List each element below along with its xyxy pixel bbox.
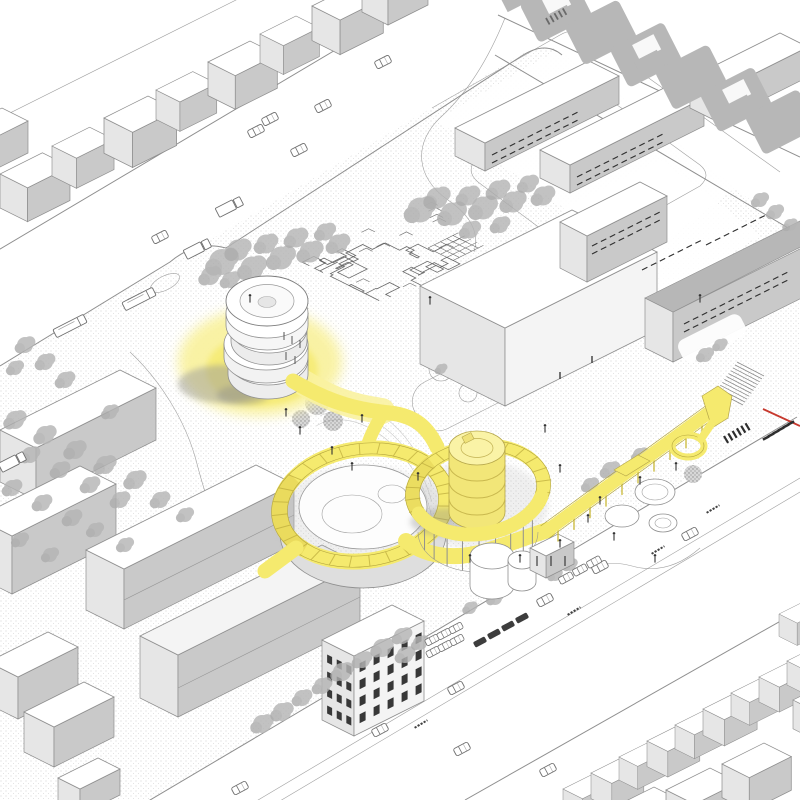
pavilion-cylinder-top [470, 543, 514, 569]
axonometric-drawing [0, 0, 800, 800]
play-ring-1 [635, 479, 675, 505]
site-plan-canvas [0, 0, 800, 800]
play-ring-3 [649, 514, 677, 532]
planting-circle-4 [684, 465, 702, 483]
observation-tower-top [449, 431, 505, 465]
play-ring-2 [605, 505, 639, 527]
tower-core [258, 297, 276, 308]
planting-circle-2 [292, 410, 310, 428]
